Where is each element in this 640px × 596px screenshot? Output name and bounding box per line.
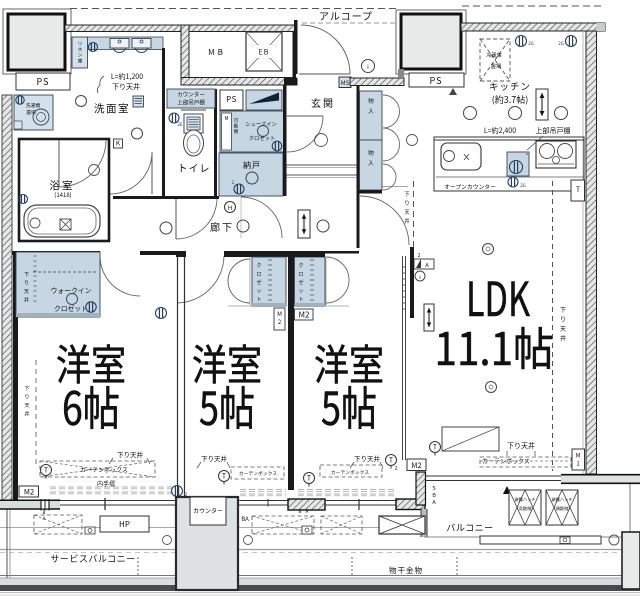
svg-text:(約3.7帖): (約3.7帖) — [492, 93, 529, 106]
svg-text:天: 天 — [24, 288, 29, 295]
svg-text:物: 物 — [368, 149, 374, 157]
svg-text:カーテンボックス: カーテンボックス — [331, 469, 369, 476]
svg-text:カーテンボックス: カーテンボックス — [80, 465, 128, 474]
svg-text:バルコニー: バルコニー — [446, 521, 493, 534]
svg-text:下り天井: 下り天井 — [201, 453, 228, 463]
svg-text:5帖: 5帖 — [321, 373, 377, 439]
svg-text:サービスバルコニー: サービスバルコニー — [50, 552, 135, 565]
svg-text:(1418): (1418) — [54, 190, 71, 199]
svg-text:M2: M2 — [24, 487, 34, 498]
svg-text:L=約2,400: L=約2,400 — [484, 126, 516, 136]
svg-text:下り天井: 下り天井 — [507, 441, 535, 451]
svg-text:*: * — [526, 151, 529, 160]
svg-text:庫: 庫 — [78, 57, 83, 64]
svg-text:A: A — [306, 509, 309, 515]
svg-text:アルコープ: アルコープ — [319, 8, 373, 23]
svg-text:1: 1 — [576, 459, 579, 468]
svg-text:物干金物: 物干金物 — [389, 565, 423, 576]
svg-text:2G: 2G — [558, 41, 564, 47]
svg-text:ト: ト — [256, 296, 261, 303]
svg-text:T: T — [44, 466, 48, 476]
svg-text:り: り — [404, 199, 410, 207]
svg-text:6帖: 6帖 — [62, 373, 120, 439]
svg-text:り: り — [24, 394, 29, 401]
svg-text:物: 物 — [368, 97, 374, 105]
svg-text:2G: 2G — [520, 183, 526, 189]
svg-text:冷蔵庫: 冷蔵庫 — [486, 51, 502, 59]
svg-text:MS: MS — [341, 78, 350, 87]
svg-text:シューズイン: シューズイン — [245, 120, 277, 128]
svg-text:T: T — [576, 185, 580, 195]
svg-text:置場: 置場 — [491, 62, 501, 70]
svg-text:ロ: ロ — [256, 271, 261, 278]
svg-text:ッ: ッ — [298, 288, 303, 295]
svg-text:天: 天 — [24, 402, 29, 409]
svg-text:ト: ト — [298, 296, 303, 303]
svg-text:下: 下 — [560, 305, 566, 314]
svg-text:下: 下 — [24, 385, 29, 392]
svg-text:納戸: 納戸 — [243, 160, 261, 171]
svg-text:オープンカウンター: オープンカウンター — [444, 182, 496, 191]
svg-text:PS: PS — [226, 94, 237, 105]
svg-text:クロゼット: クロゼット — [249, 134, 276, 142]
svg-text:廊下: 廊下 — [210, 219, 234, 234]
svg-text:ッ: ッ — [256, 288, 261, 295]
svg-text:玄関: 玄関 — [311, 95, 335, 110]
svg-text:下り天井: 下り天井 — [117, 449, 144, 459]
svg-text:T: T — [433, 443, 437, 453]
svg-text:井: 井 — [24, 410, 29, 418]
svg-text:カウンター: カウンター — [193, 506, 223, 515]
svg-text:下: 下 — [24, 271, 29, 278]
svg-text:入: 入 — [368, 159, 374, 167]
svg-text:井: 井 — [404, 217, 410, 225]
svg-text:11.1帖: 11.1帖 — [435, 313, 554, 378]
svg-text:ク: ク — [256, 262, 261, 269]
svg-text:下り天井: 下り天井 — [354, 453, 381, 463]
svg-text:MB: MB — [208, 47, 226, 58]
svg-text:2G: 2G — [528, 41, 534, 47]
svg-text:A: A — [43, 516, 46, 522]
svg-text:BA: BA — [241, 514, 249, 523]
svg-text:下り天井: 下り天井 — [112, 82, 140, 92]
svg-text:り: り — [24, 280, 29, 287]
svg-text:ロ: ロ — [298, 271, 303, 278]
svg-text:(奇数階): (奇数階) — [517, 505, 533, 512]
svg-text:HP: HP — [119, 519, 130, 530]
svg-text:上部吊戸棚: 上部吊戸棚 — [536, 126, 571, 136]
svg-text:下: 下 — [404, 190, 410, 198]
svg-text:井: 井 — [24, 296, 29, 304]
svg-text:トイレ: トイレ — [178, 160, 211, 175]
svg-text:り: り — [560, 315, 566, 324]
svg-text:ゼ: ゼ — [256, 278, 261, 286]
svg-text:(偶数階): (偶数階) — [554, 505, 570, 512]
svg-text:EB: EB — [259, 48, 270, 58]
svg-text:避難ハッチ: 避難ハッチ — [552, 496, 573, 503]
svg-text:洗濯機: 洗濯機 — [26, 102, 41, 109]
svg-text:天: 天 — [560, 324, 566, 333]
svg-text:T: T — [389, 456, 393, 466]
svg-text:PS: PS — [430, 74, 443, 87]
svg-text:洗面室: 洗面室 — [94, 101, 130, 116]
svg-text:カウンター: カウンター — [177, 91, 205, 99]
svg-text:M2: M2 — [299, 310, 310, 321]
svg-text:入: 入 — [368, 107, 374, 115]
svg-text:PS: PS — [37, 75, 50, 88]
svg-text:2: 2 — [395, 465, 398, 472]
svg-text:2E: 2E — [177, 122, 182, 128]
svg-text:上部吊戸棚: 上部吊戸棚 — [177, 99, 205, 107]
svg-text:5帖: 5帖 — [199, 373, 255, 439]
svg-text:B: B — [299, 509, 302, 515]
svg-text:天: 天 — [404, 208, 410, 216]
svg-text:避難ハッチ: 避難ハッチ — [515, 496, 536, 503]
svg-text:井: 井 — [560, 334, 566, 343]
svg-text:H: H — [228, 203, 232, 212]
svg-text:ゼ: ゼ — [298, 278, 303, 286]
svg-text:M: M — [224, 115, 228, 122]
svg-text:T: T — [307, 474, 311, 484]
svg-text:ク: ク — [298, 262, 303, 269]
svg-text:カーテンボックス: カーテンボックス — [239, 470, 277, 477]
svg-text:T: T — [222, 472, 226, 482]
svg-text:L=約1,200: L=約1,200 — [111, 72, 143, 82]
svg-text:2: 2 — [418, 252, 421, 259]
svg-text:棚: 棚 — [234, 128, 239, 135]
svg-text:M2: M2 — [411, 460, 421, 471]
